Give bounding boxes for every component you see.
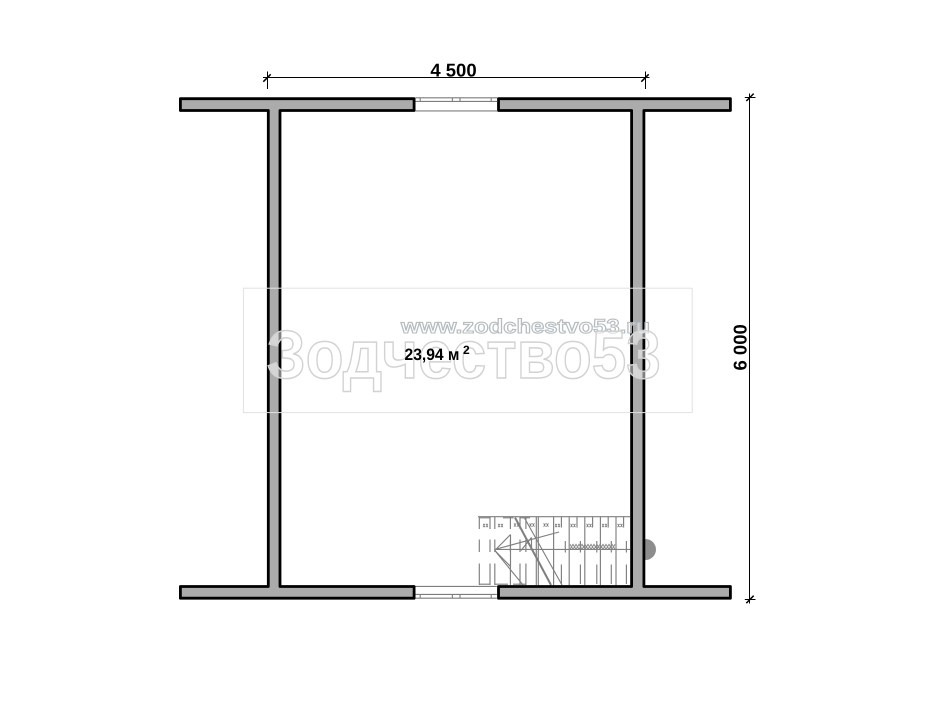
svg-text:23,94 м: 23,94 м (405, 346, 460, 364)
svg-text:6 000: 6 000 (730, 324, 751, 370)
svg-text:2: 2 (463, 343, 470, 357)
svg-text:4 500: 4 500 (430, 60, 476, 81)
